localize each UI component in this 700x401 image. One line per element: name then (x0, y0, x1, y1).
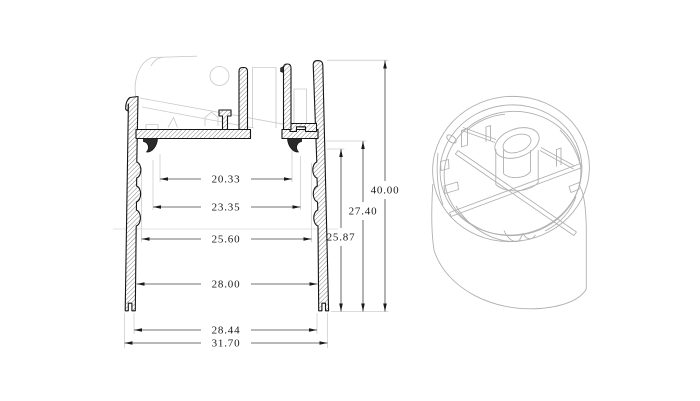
extension-line-group (113, 60, 389, 348)
iso-body-bottom (434, 251, 586, 309)
section-right-wall (313, 61, 329, 311)
drawing-svg: 20.33 23.35 25.60 28.00 28.44 31.70 25.8… (0, 0, 700, 401)
dimension-group: 20.33 23.35 25.60 28.00 28.44 31.70 25.8… (125, 61, 400, 350)
iso-inner-wall-right (560, 130, 580, 164)
section-fin-2 (284, 64, 292, 130)
isometric-view-group (423, 86, 599, 309)
ghost-rect-2 (294, 89, 307, 128)
iso-boss-inner-sides (504, 150, 531, 174)
dim-label-23-35: 23.35 (212, 202, 241, 214)
dim-label-25-87: 25.87 (327, 232, 356, 244)
section-barb-left (144, 139, 158, 153)
section-t-rib (219, 110, 231, 130)
iso-spoke-right (540, 148, 575, 170)
dim-label-27-40: 27.40 (349, 206, 378, 218)
ghost-inner-curl (151, 58, 163, 67)
section-fin-2-nub (281, 67, 284, 73)
dim-label-28-00: 28.00 (212, 279, 241, 291)
dim-label-31-70: 31.70 (212, 338, 241, 350)
dim-label-20-33: 20.33 (212, 174, 241, 186)
ghost-shelf-block (146, 125, 158, 130)
dim-label-28-44: 28.44 (212, 325, 241, 337)
technical-drawing-canvas: 20.33 23.35 25.60 28.00 28.44 31.70 25.8… (0, 0, 700, 401)
iso-boss-outer (491, 122, 544, 164)
dim-arrows (125, 61, 387, 345)
section-fin-1 (239, 68, 248, 130)
ghost-triangle (168, 118, 178, 128)
iso-boss-sides (496, 149, 538, 185)
dim-label-40-00: 40.00 (371, 185, 400, 197)
ghost-diagonal-2 (142, 107, 254, 128)
section-barb-right (288, 139, 302, 153)
ghost-hole-circle (210, 67, 229, 86)
section-shelf-left (136, 130, 251, 139)
section-view-group (125, 61, 328, 311)
section-left-wall (125, 97, 141, 311)
ghost-top-curve (135, 56, 197, 101)
iso-boss-inner-bottom (504, 172, 531, 178)
iso-body-right (581, 189, 586, 289)
iso-body-left (432, 184, 434, 251)
dim-label-25-60: 25.60 (212, 234, 241, 246)
